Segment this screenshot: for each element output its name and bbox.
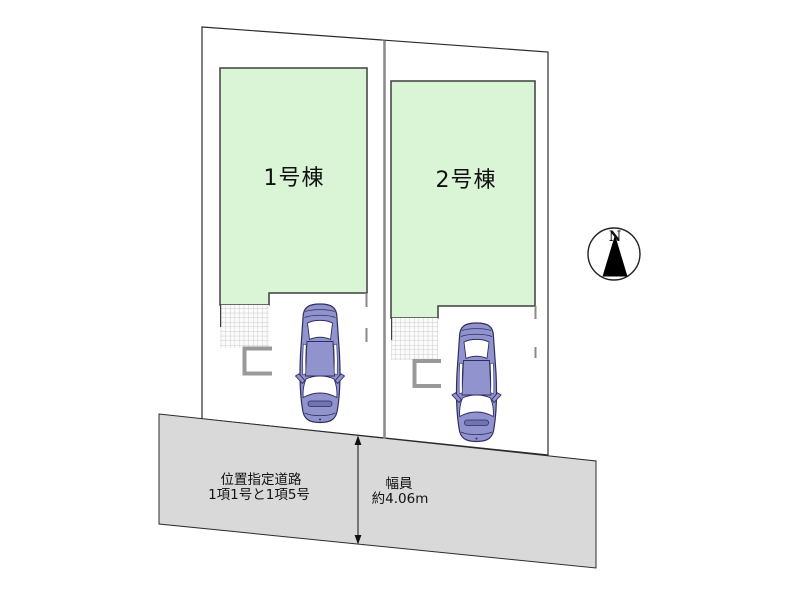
building-2-label: 2号棟 bbox=[436, 168, 497, 193]
site-plan: 1号棟 2号棟 位置指定道路 1項1号と1項5号 幅員 約4.06m N bbox=[0, 0, 800, 600]
compass: N bbox=[588, 228, 640, 280]
building-1-label: 1号棟 bbox=[264, 166, 325, 191]
building-2-footprint bbox=[391, 81, 535, 318]
road-name-line2: 1項1号と1項5号 bbox=[208, 487, 310, 503]
compass-north-label: N bbox=[609, 229, 621, 245]
car-2 bbox=[452, 323, 501, 442]
approach-tiles-1 bbox=[220, 305, 269, 348]
car-1 bbox=[296, 304, 345, 423]
site-plan-svg: 1号棟 2号棟 位置指定道路 1項1号と1項5号 幅員 約4.06m N bbox=[0, 0, 800, 600]
road-width-title: 幅員 bbox=[386, 476, 413, 492]
road-width-value: 約4.06m bbox=[372, 491, 429, 507]
road-name-line1: 位置指定道路 bbox=[221, 472, 302, 488]
approach-tiles-2 bbox=[391, 318, 438, 360]
